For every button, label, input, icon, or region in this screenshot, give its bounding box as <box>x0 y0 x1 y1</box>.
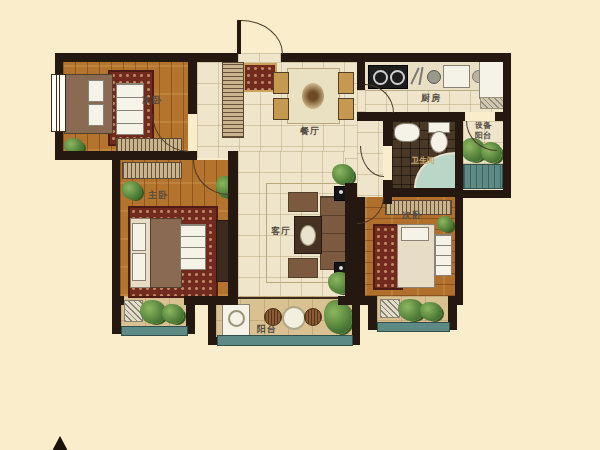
bay-window-right-glass <box>377 322 450 332</box>
bed-pillow <box>88 80 104 102</box>
wall <box>383 121 392 146</box>
entry-threshold <box>238 53 281 62</box>
room-label-bedroom-top-left: 次卧 <box>122 95 182 105</box>
wall <box>368 296 377 330</box>
stove-burner <box>390 70 405 85</box>
window <box>51 74 66 132</box>
floor-plan: 次卧 餐厅 厨房 设备 阳台 卫生间 主卧 客厅 次卧 阳台 <box>0 0 600 450</box>
toilet-bowl <box>430 131 448 153</box>
balcony-glass <box>217 335 353 346</box>
room-label-bathroom: 卫生间 <box>393 156 453 166</box>
bed-pillow <box>401 227 429 241</box>
stove-burner <box>373 70 388 85</box>
wall <box>357 62 365 90</box>
bed-pillow <box>88 104 104 126</box>
room-label-master-bedroom: 主卧 <box>128 190 188 200</box>
pot-icon <box>427 70 441 84</box>
bay-window-left-glass <box>121 326 188 336</box>
room-label-dining: 餐厅 <box>280 126 340 136</box>
utility-label-line1: 设备 <box>465 121 501 131</box>
north-arrow-icon <box>52 436 68 450</box>
wall <box>455 188 463 305</box>
wall <box>281 53 511 62</box>
wall <box>55 151 197 160</box>
armchair <box>288 192 318 212</box>
kitchen-sink <box>443 65 470 88</box>
wall <box>188 62 197 114</box>
dining-chair <box>338 72 354 94</box>
wall <box>455 190 511 198</box>
wall <box>208 337 217 345</box>
wardrobe <box>122 162 182 179</box>
wall <box>345 183 357 296</box>
plant <box>162 304 184 324</box>
dining-chair <box>273 72 289 94</box>
kitchen-shelf <box>480 97 505 109</box>
wall <box>455 121 463 198</box>
wall <box>357 112 465 121</box>
plant <box>324 300 352 334</box>
wall <box>55 53 238 62</box>
wall <box>228 151 238 305</box>
lounge-chair <box>380 299 400 318</box>
room-label-kitchen: 厨房 <box>401 93 461 103</box>
room-label-utility-balcony: 设备 阳台 <box>465 121 501 141</box>
room-label-living-room: 客厅 <box>251 226 311 236</box>
flower-pot <box>304 308 322 326</box>
room-label-balcony: 阳台 <box>237 324 297 334</box>
armchair <box>288 258 318 278</box>
bed-pillow <box>132 253 146 281</box>
dresser <box>435 234 452 276</box>
fridge <box>479 61 505 99</box>
wall <box>112 296 121 334</box>
dresser <box>180 224 206 270</box>
hall-cabinet <box>222 62 244 138</box>
wall <box>503 53 511 198</box>
utility-label-line2: 阳台 <box>465 131 501 141</box>
bed-blanket <box>150 218 182 288</box>
plant <box>332 164 354 185</box>
room-label-bedroom-right: 次卧 <box>382 210 442 220</box>
wall <box>383 188 455 197</box>
utility-planter <box>463 164 503 189</box>
bathroom-sink <box>394 123 420 142</box>
sliding-door-track <box>238 297 338 299</box>
dining-chair <box>273 98 289 120</box>
plant <box>420 302 442 321</box>
dining-chair <box>338 98 354 120</box>
bed-pillow <box>132 223 146 251</box>
sofa <box>320 196 346 270</box>
entry-mat <box>243 63 277 92</box>
wall <box>112 158 120 305</box>
dresser <box>116 83 144 135</box>
entry-door-arc <box>241 20 283 54</box>
dining-centerpiece <box>302 83 324 109</box>
